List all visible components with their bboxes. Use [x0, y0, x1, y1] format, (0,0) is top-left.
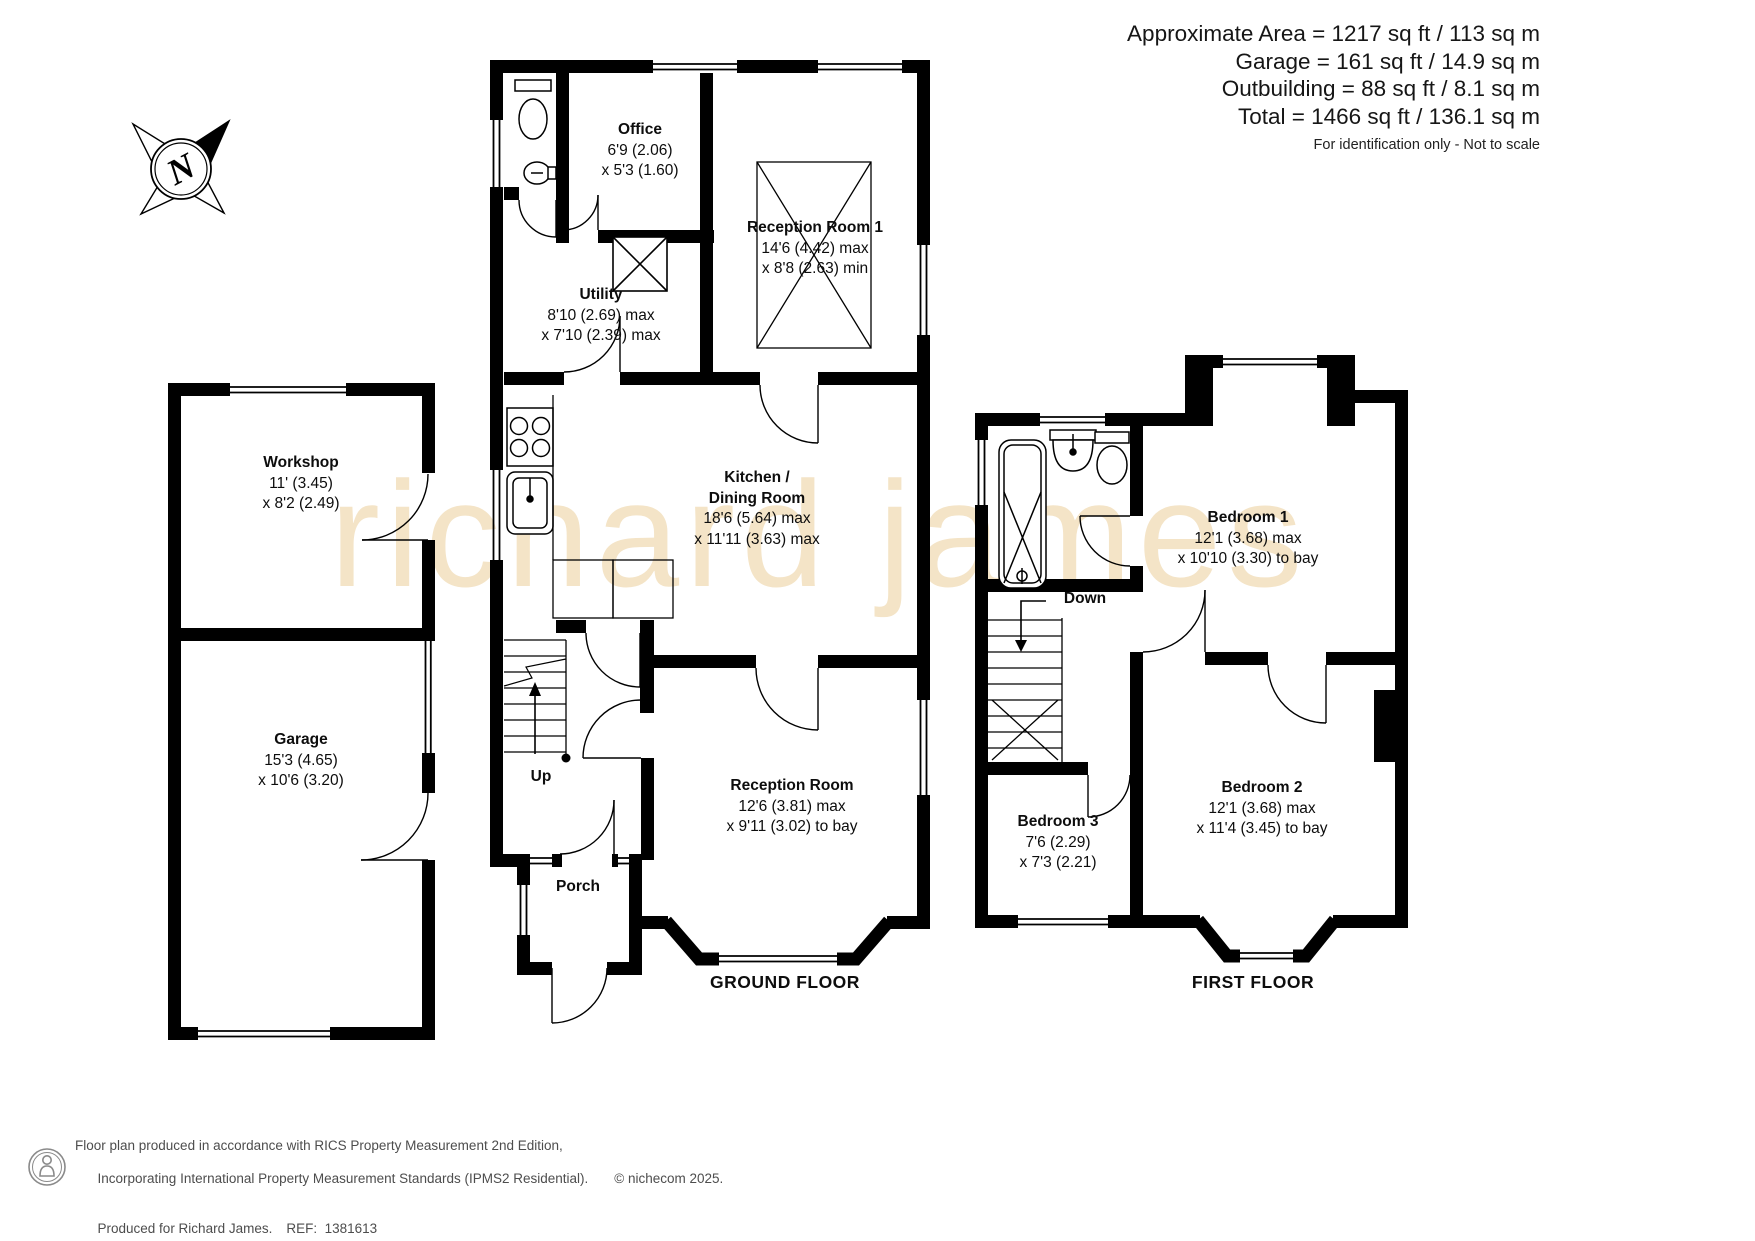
stairs-up-label: Up — [531, 768, 552, 786]
footer-ref: REF: 1381613 — [272, 1221, 377, 1236]
stairs-down-label: Down — [1064, 590, 1106, 608]
person-badge-icon — [29, 1149, 65, 1185]
approximate-area: Approximate Area = 1217 sq ft / 113 sq m — [1127, 20, 1540, 48]
kitchen-sink-icon — [507, 472, 553, 534]
ground-floor-title: GROUND FLOOR — [710, 972, 860, 993]
wc-toilet-icon — [515, 80, 551, 139]
room-label-bedroom2: Bedroom 2 12'1 (3.68) max x 11'4 (3.45) … — [1196, 778, 1327, 840]
area-summary: Approximate Area = 1217 sq ft / 113 sq m… — [1127, 20, 1540, 153]
footer-disclaimer: Floor plan produced in accordance with R… — [75, 1138, 723, 1241]
floorplan-linework: N — [0, 0, 1755, 1241]
room-label-office: Office 6'9 (2.06) x 5'3 (1.60) — [601, 120, 678, 182]
bathroom-sink-icon — [1050, 430, 1096, 471]
wc-sink-icon — [524, 162, 556, 184]
footer-line2: Incorporating International Property Mea… — [98, 1171, 589, 1186]
room-label-utility: Utility 8'10 (2.69) max x 7'10 (2.39) ma… — [541, 285, 660, 347]
ground-bay-window — [666, 921, 889, 966]
footer-copyright: © nichecom 2025. — [588, 1171, 723, 1186]
total-area: Total = 1466 sq ft / 136.1 sq m — [1127, 103, 1540, 131]
outbuilding-area: Outbuilding = 88 sq ft / 8.1 sq m — [1127, 75, 1540, 103]
kitchen-counter — [553, 395, 673, 618]
stairs-up — [504, 640, 571, 763]
footer-line1: Floor plan produced in accordance with R… — [75, 1138, 723, 1155]
room-label-workshop: Workshop 11' (3.45) x 8'2 (2.49) — [262, 453, 339, 515]
first-floor-title: FIRST FLOOR — [1192, 972, 1314, 993]
footer-produced: Produced for Richard James. — [98, 1221, 273, 1236]
room-label-bedroom3: Bedroom 3 7'6 (2.29) x 7'3 (2.21) — [1018, 812, 1099, 874]
bathroom-toilet-icon — [1095, 432, 1129, 484]
bath-icon — [999, 440, 1046, 588]
utility-appliance-icon — [613, 237, 667, 291]
room-label-kitchen: Kitchen / Dining Room 18'6 (5.64) max x … — [694, 468, 820, 550]
outbuilding-doors — [361, 474, 428, 860]
room-label-bedroom1: Bedroom 1 12'1 (3.68) max x 10'10 (3.30)… — [1178, 508, 1319, 570]
garage-area: Garage = 161 sq ft / 14.9 sq m — [1127, 48, 1540, 76]
room-label-porch: Porch — [556, 877, 600, 898]
compass-rose-icon: N — [133, 121, 229, 214]
scale-disclaimer: For identification only - Not to scale — [1127, 137, 1540, 153]
stairs-down — [988, 601, 1062, 762]
room-label-reception: Reception Room 12'6 (3.81) max x 9'11 (3… — [726, 776, 857, 838]
floorplan-page: richard james N — [0, 0, 1755, 1241]
room-label-garage: Garage 15'3 (4.65) x 10'6 (3.20) — [258, 730, 344, 792]
room-label-reception1: Reception Room 1 14'6 (4.42) max x 8'8 (… — [747, 218, 883, 280]
kitchen-hob-icon — [507, 408, 553, 466]
first-bay-window — [1198, 920, 1335, 963]
